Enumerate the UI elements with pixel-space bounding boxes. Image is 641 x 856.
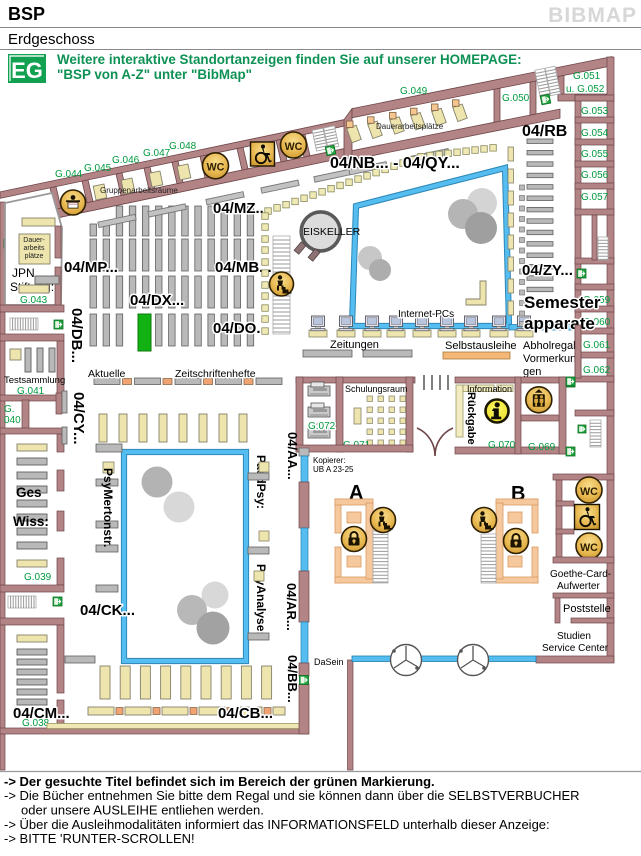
svg-text:gen: gen (523, 366, 541, 378)
svg-text:04/DB...: 04/DB... (68, 308, 85, 363)
svg-text:04/BB...: 04/BB... (285, 655, 300, 703)
svg-text:04/CY...: 04/CY... (70, 392, 87, 445)
svg-text:-> Der gesuchte Titel befindet: -> Der gesuchte Titel befindet sich im B… (4, 774, 435, 789)
svg-text:Aktuelle: Aktuelle (88, 368, 126, 380)
svg-text:Kopierer:: Kopierer: (313, 456, 345, 465)
svg-text:u. G.052: u. G.052 (566, 84, 605, 95)
svg-text:apparate: apparate (524, 314, 595, 333)
svg-text:-> BITTE 'RUNTER-SCROLLEN!: -> BITTE 'RUNTER-SCROLLEN! (4, 831, 195, 846)
svg-text:WC: WC (580, 542, 598, 554)
svg-text:EG: EG (11, 58, 43, 83)
svg-text:Dauerarbeitsplätze: Dauerarbeitsplätze (376, 122, 444, 131)
svg-text:Internet-PCs: Internet-PCs (398, 309, 454, 320)
svg-text:04/DX...: 04/DX... (130, 292, 184, 309)
svg-text:04/NB... - 04/QY...: 04/NB... - 04/QY... (330, 155, 460, 172)
svg-text:WC: WC (285, 141, 303, 153)
svg-text:G.061: G.061 (583, 340, 611, 351)
svg-text:G.051: G.051 (573, 71, 601, 82)
svg-text:04/MZ...: 04/MZ... (213, 200, 268, 217)
svg-text:G.069: G.069 (528, 442, 556, 453)
svg-text:G.045: G.045 (84, 163, 112, 174)
svg-text:Testsammlung: Testsammlung (4, 375, 65, 386)
svg-text:Vormerkun-: Vormerkun- (523, 353, 580, 365)
svg-text:04/DO...: 04/DO... (213, 320, 269, 337)
svg-text:Goethe-Card-: Goethe-Card- (550, 569, 611, 580)
svg-text:Weitere interaktive Standortan: Weitere interaktive Standortanzeigen fin… (57, 52, 522, 67)
svg-text:Schulungsraum: Schulungsraum (345, 384, 408, 394)
svg-text:Ges: Ges (16, 485, 42, 500)
svg-text:G.057: G.057 (581, 192, 609, 203)
svg-text:G.070: G.070 (488, 440, 516, 451)
svg-text:Gruppenarbeitsräume: Gruppenarbeitsräume (100, 186, 178, 195)
svg-text:G.050: G.050 (502, 93, 530, 104)
svg-text:BSP: BSP (8, 4, 45, 24)
svg-text:arbeits: arbeits (23, 245, 45, 252)
svg-text:G.038: G.038 (22, 718, 50, 729)
svg-text:G.047: G.047 (143, 148, 171, 159)
svg-text:G.055: G.055 (581, 149, 609, 160)
svg-text:UB A 23-25: UB A 23-25 (313, 465, 354, 474)
svg-text:PsyMertonstr.: PsyMertonstr. (101, 468, 115, 547)
svg-text:040: 040 (4, 415, 21, 426)
svg-text:04/MP...: 04/MP... (64, 259, 118, 276)
svg-text:Poststelle: Poststelle (563, 603, 611, 615)
svg-text:WC: WC (207, 162, 225, 174)
svg-text:04/ZY...: 04/ZY... (522, 262, 573, 279)
svg-text:Selbstausleihe: Selbstausleihe (445, 340, 517, 352)
svg-text:-> Über die Ausleihmodalitäten: -> Über die Ausleihmodalitäten informier… (4, 817, 550, 832)
svg-text:Service Center: Service Center (542, 643, 609, 654)
svg-text:G.039: G.039 (24, 572, 52, 583)
svg-text:Studien: Studien (557, 631, 591, 642)
svg-text:G.062: G.062 (583, 365, 611, 376)
svg-text:JPN: JPN (12, 266, 35, 280)
svg-text:-> Die Bücher entnehmen Sie bi: -> Die Bücher entnehmen Sie bitte dem Re… (4, 788, 580, 803)
svg-text:BIBMAP: BIBMAP (548, 4, 637, 27)
svg-text:G.054: G.054 (581, 128, 609, 139)
svg-text:"BSP von A-Z" unter "BibMap": "BSP von A-Z" unter "BibMap" (57, 67, 252, 82)
svg-text:Dauer-: Dauer- (23, 237, 45, 244)
svg-text:04/RB: 04/RB (522, 123, 567, 140)
svg-text:Zeitungen: Zeitungen (330, 339, 379, 351)
svg-text:WC: WC (580, 486, 598, 498)
svg-text:G.049: G.049 (400, 86, 428, 97)
svg-text:04/CK...: 04/CK... (80, 602, 135, 619)
svg-text:04/CB...: 04/CB... (218, 705, 273, 722)
svg-text:G.048: G.048 (169, 141, 197, 152)
svg-text:G.053: G.053 (581, 106, 609, 117)
svg-text:Rückgabe: Rückgabe (465, 392, 477, 445)
svg-text:G.044: G.044 (55, 169, 83, 180)
svg-text:plätze: plätze (25, 253, 44, 260)
svg-text:Erdgeschoss: Erdgeschoss (8, 31, 95, 48)
svg-text:G.056: G.056 (581, 170, 609, 181)
svg-text:G.043: G.043 (20, 295, 48, 306)
svg-text:Wiss:: Wiss: (13, 514, 49, 529)
svg-text:Abholregal: Abholregal (523, 340, 576, 352)
svg-text:oder unsere AUSLEIHE entliehen: oder unsere AUSLEIHE entliehen werden. (21, 803, 264, 818)
svg-text:Semester: Semester (524, 293, 601, 312)
svg-text:Zeitschriftenhefte: Zeitschriftenhefte (175, 368, 256, 380)
svg-text:G.: G. (4, 404, 15, 415)
svg-text:04/AA...: 04/AA... (285, 432, 300, 480)
svg-text:G.046: G.046 (112, 155, 140, 166)
svg-text:Aufwerter: Aufwerter (557, 581, 600, 592)
svg-text:04/AR...: 04/AR... (284, 583, 299, 631)
svg-text:EISKELLER: EISKELLER (303, 226, 361, 238)
svg-text:DaSein: DaSein (314, 657, 344, 667)
svg-text:G.072: G.072 (308, 421, 336, 432)
